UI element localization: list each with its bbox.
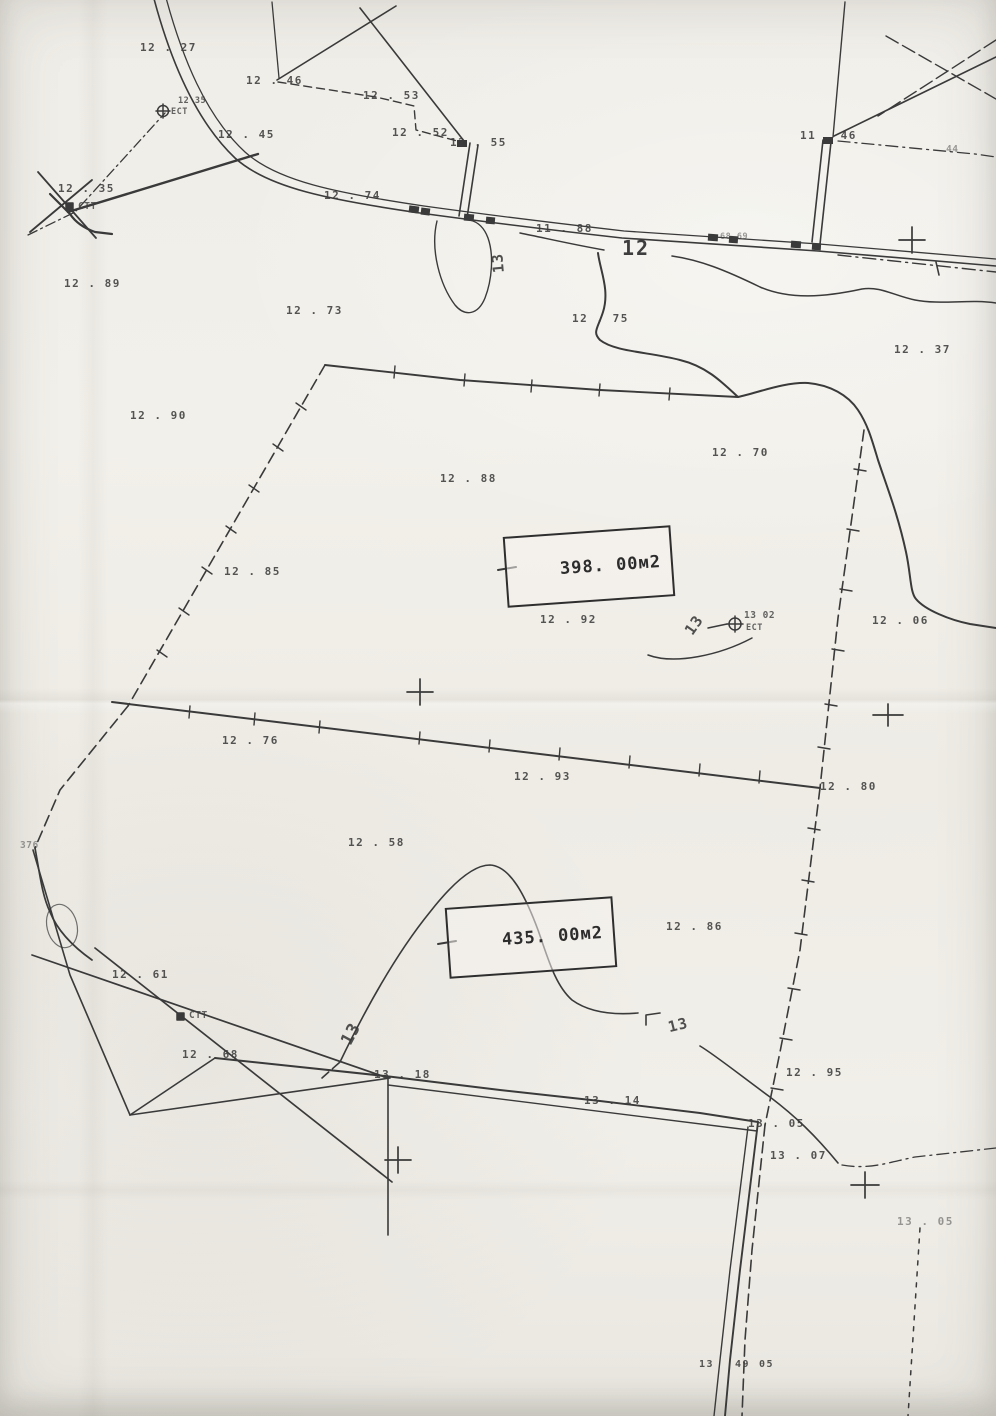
spot-elevation: 12 . 85 <box>224 565 281 578</box>
fragment-label: 44 <box>946 144 958 155</box>
spot-elevation: 12 . 76 <box>222 734 279 747</box>
spot-elevation: 12 . 80 <box>820 780 877 793</box>
contour-line-13-lower <box>322 865 996 1167</box>
top-right-lines <box>833 2 996 157</box>
spot-elevation: 12 . 93 <box>514 770 571 783</box>
spot-elevation: 12 . 88 <box>440 472 497 485</box>
fragment-label: 49 <box>735 1359 750 1370</box>
marker-label: ЕСТ <box>171 107 188 117</box>
spot-elevation: 12 . 46 <box>246 74 303 87</box>
fragment-label: 13 <box>699 1359 714 1370</box>
fragment-label: 05 <box>759 1359 774 1370</box>
scanned-survey-map: 398. 00м2 435. 00м2 12 13 13 13 13 12 . … <box>0 0 996 1416</box>
spot-elevation: 12 . 74 <box>324 189 381 202</box>
spot-elevation: 12 . 27 <box>140 41 197 54</box>
contour-line-12 <box>520 233 996 303</box>
spot-elevation: 12 . 89 <box>64 277 121 290</box>
area-label: 398. 00м2 <box>559 552 661 579</box>
area-box-tails <box>438 567 516 944</box>
spot-elevation: 12 . 86 <box>666 920 723 933</box>
spot-elevation: 12 . 58 <box>348 836 405 849</box>
survey-linework <box>0 0 996 1416</box>
spot-elevation: 12 . 37 <box>894 343 951 356</box>
spot-elevation: 12 . 68 <box>182 1048 239 1061</box>
marker-label: СТТ <box>189 1010 208 1021</box>
spot-elevation: 12 . 75 <box>572 312 629 325</box>
marker-label: ЕСТ <box>746 623 763 633</box>
contour-label: 13 <box>488 252 508 274</box>
fragment-label: 68 69 <box>720 232 748 242</box>
spot-elevation: 12 . 55 <box>450 136 507 149</box>
road-dash-dot-extension <box>838 255 996 275</box>
pond-outline <box>435 220 492 313</box>
marker-label: 13 02 <box>744 610 775 621</box>
spot-elevation: 12 . 73 <box>286 304 343 317</box>
spot-elevation: 12 . 92 <box>540 613 597 626</box>
parcel-435-boundary <box>32 706 820 1416</box>
grid-cross <box>385 227 925 1198</box>
area-label: 435. 00м2 <box>501 923 603 950</box>
area-label-box: 398. 00м2 <box>503 525 676 608</box>
spot-elevation: 13 . 07 <box>770 1149 827 1162</box>
contour-label: 12 <box>622 236 650 260</box>
spot-elevation: 12 . 61 <box>112 968 169 981</box>
spot-elevation: 12 . 95 <box>786 1066 843 1079</box>
spot-elevation: 13 . 18 <box>374 1068 431 1081</box>
marker-label: 12 35 <box>178 96 206 106</box>
spot-elevation: 13 . 05 <box>897 1215 954 1228</box>
spot-elevation: 12 . 53 <box>363 89 420 102</box>
spot-elevation: 11 . 46 <box>800 129 857 142</box>
spot-elevation: 12 . 90 <box>130 409 187 422</box>
road-branch-lines <box>459 140 831 244</box>
spot-elevation: 13 . 14 <box>584 1094 641 1107</box>
area-label-box: 435. 00м2 <box>445 896 618 979</box>
spot-elevation: 12 . 52 <box>392 126 449 139</box>
fragment-label: 376 <box>20 840 39 851</box>
spot-elevation: 13 . 05 <box>748 1117 805 1130</box>
bottom-right-dotted-line <box>908 1228 920 1416</box>
marker-label: СТТ <box>78 201 97 212</box>
spot-elevation: 11 . 88 <box>536 222 593 235</box>
spot-elevation: 12 . 45 <box>218 128 275 141</box>
utility-pole-symbols <box>409 137 833 250</box>
spot-elevation: 12 . 70 <box>712 446 769 459</box>
spot-elevation: 12 . 06 <box>872 614 929 627</box>
spot-elevation: 12 . 35 <box>58 182 115 195</box>
